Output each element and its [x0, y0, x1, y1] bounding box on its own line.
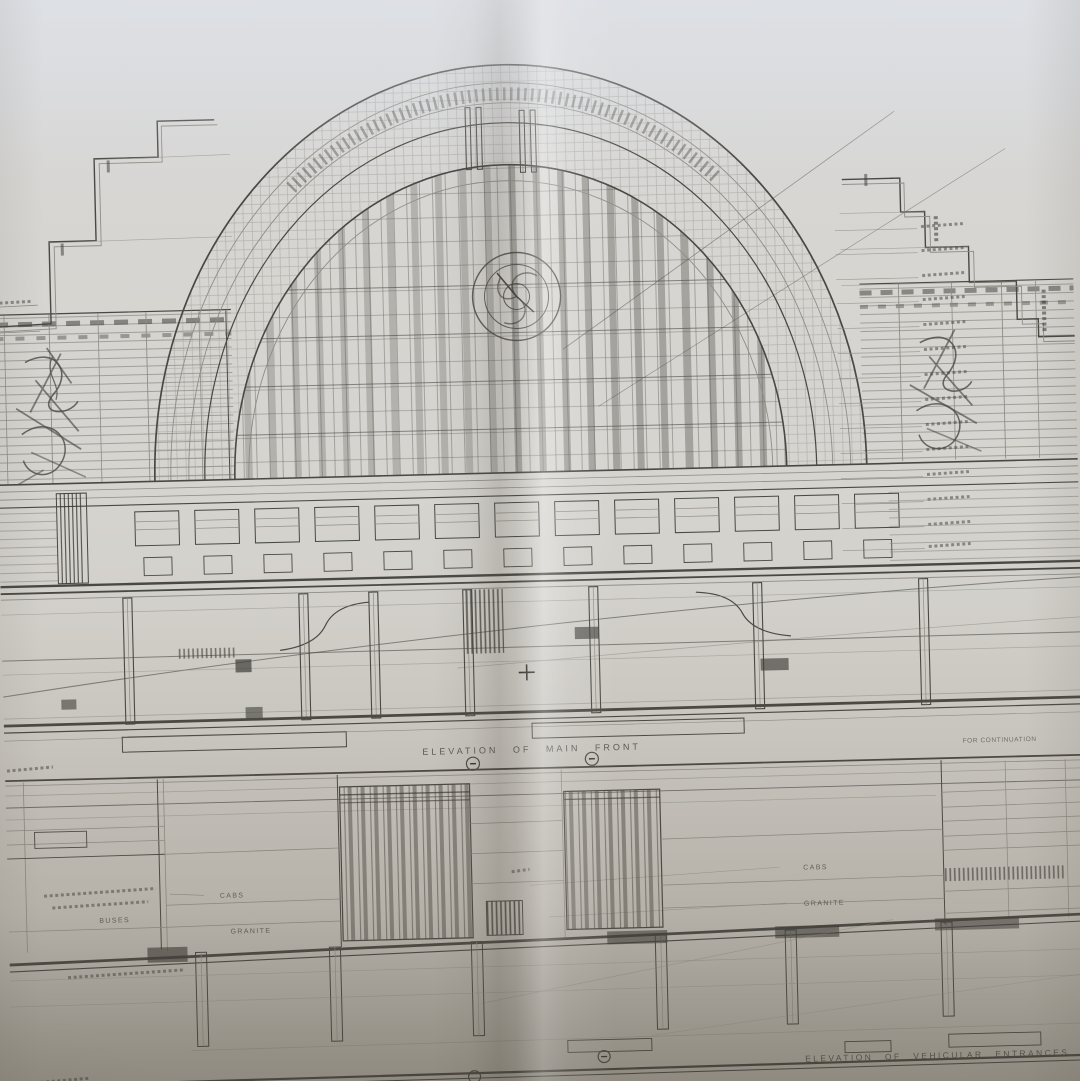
- label-cabs-left: CABS: [220, 892, 245, 900]
- caption-main-front: ELEVATION OF MAIN FRONT: [422, 742, 641, 757]
- margin-note-mark: [7, 767, 53, 771]
- continuation-note: FOR CONTINUATION: [962, 736, 1036, 745]
- label-buses: BUSES: [99, 917, 130, 925]
- elevation-drawing: ELEVATION OF MAIN FRONT FOR CONTINUATION…: [0, 0, 1080, 1081]
- label-box: [949, 1032, 1041, 1047]
- right-cab-wall: CABS GRANITE: [659, 760, 945, 931]
- bus-pavilion: BUSES: [5, 779, 167, 953]
- label-cabs-right: CABS: [803, 864, 828, 872]
- pylon-tower-a: [339, 784, 473, 941]
- title-box: [532, 718, 744, 738]
- label-granite-right: GRANITE: [804, 900, 845, 908]
- label-box: [568, 1038, 652, 1052]
- label-granite-left: GRANITE: [230, 928, 271, 936]
- approach-ramp-curve: [1, 577, 1080, 697]
- upper-elevation: [0, 51, 1080, 587]
- pylon-tower-b: [564, 789, 663, 929]
- clock-medallion-icon: [471, 251, 561, 341]
- central-stair-hatch: [463, 589, 505, 654]
- title-box: [122, 732, 346, 752]
- label-box: [35, 831, 87, 848]
- book-page-photo: ELEVATION OF MAIN FRONT FOR CONTINUATION…: [0, 0, 1080, 1081]
- terrace-plaza-section: ELEVATION OF MAIN FRONT FOR CONTINUATION: [1, 568, 1080, 782]
- lower-elevation: BUSES CABS GRANITE: [5, 755, 1080, 1081]
